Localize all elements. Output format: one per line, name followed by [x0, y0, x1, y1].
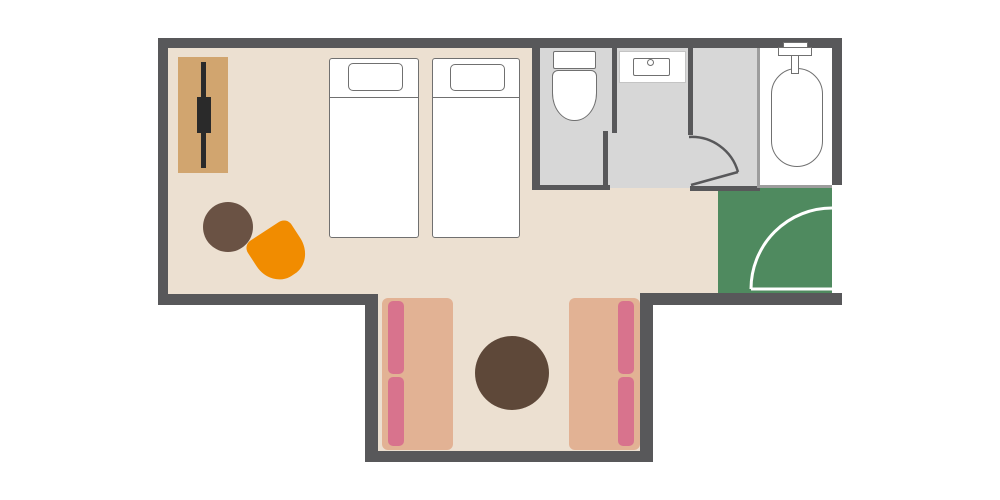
bed-2-pillow [450, 64, 505, 91]
bathroom-wall-bottom-left [532, 185, 610, 190]
toilet-tank [553, 51, 596, 69]
sofa-left-cushion-bottom [388, 377, 404, 446]
washroom-partition [688, 48, 693, 135]
wall-top [158, 38, 842, 48]
bathroom-wall-left [532, 48, 540, 188]
toilet-sliding-door [603, 131, 608, 188]
bed-1 [329, 58, 419, 238]
alcove-wall-left [365, 294, 378, 462]
wall-left [158, 38, 168, 305]
alcove-wall-bottom [365, 451, 653, 462]
bed-2-sheet-line [433, 97, 519, 98]
bed-1-sheet-line [330, 97, 418, 98]
entry-door-icon [718, 185, 834, 295]
bathtub-faucet-stem [791, 55, 799, 74]
tv-icon-body [197, 97, 211, 133]
bathtub-room-divider [757, 48, 760, 188]
floor-plan [0, 0, 1000, 500]
bed-1-pillow [348, 63, 403, 91]
sofa-left [382, 298, 453, 450]
alcove-wall-right [640, 294, 653, 462]
wall-right-upper [832, 38, 842, 185]
wall-bottom-left [158, 294, 378, 305]
bathtub [771, 68, 823, 167]
coffee-table [475, 336, 549, 410]
sofa-right-cushion-bottom [618, 377, 634, 446]
toilet-partition [612, 48, 617, 133]
sofa-left-cushion-top [388, 301, 404, 374]
basin-faucet-icon [647, 59, 654, 66]
washroom-door-icon [640, 125, 750, 190]
sofa-right [569, 298, 640, 450]
sofa-right-cushion-top [618, 301, 634, 374]
bed-2 [432, 58, 520, 238]
